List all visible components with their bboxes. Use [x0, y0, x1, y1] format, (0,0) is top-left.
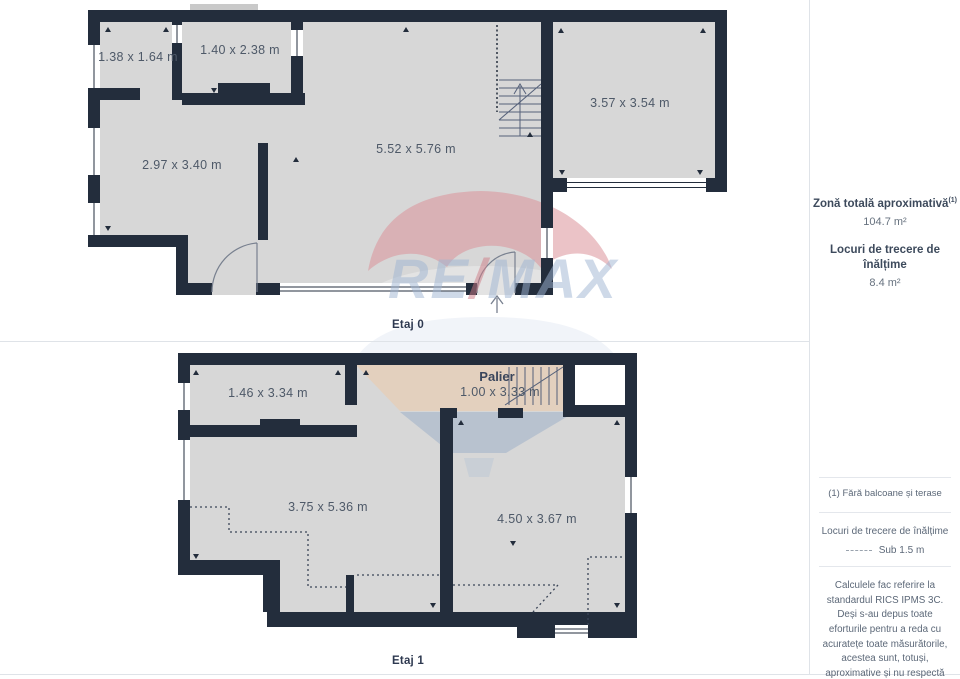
floorplan-page: RE/MAX 1.38 x 1.64 m 1.40 x 2.38 m 2.97 … [0, 0, 960, 679]
watermark-re: RE [388, 247, 470, 310]
disclaimer-block: Calculele fac referire la standardul RIC… [810, 579, 960, 679]
info-sidebar: Zonă totală aproximativă(1) 104.7 m² Loc… [810, 0, 960, 675]
dashed-line-icon [846, 550, 872, 551]
exterior-sill [190, 4, 258, 10]
legend-block: Locuri de trecere de înălțime Sub 1.5 m [810, 526, 960, 556]
disclaimer-text: Calculele fac referire la standardul RIC… [810, 579, 960, 679]
balloon2-basket [464, 458, 494, 477]
remax-watermark-text: RE/MAX [388, 246, 618, 311]
watermark-max: MAX [487, 247, 617, 310]
room-dimension-label: 1.38 x 1.64 m [98, 50, 178, 64]
total-area-block: Zonă totală aproximativă(1) 104.7 m² Loc… [810, 197, 960, 289]
footnote-marker: (1) [948, 197, 957, 204]
passage-area-label: Locuri de trecere de înălțime [810, 243, 960, 272]
legend-value-row: Sub 1.5 m [810, 545, 960, 556]
room-dimension-label: 1.46 x 3.34 m [228, 386, 308, 400]
footnote-text: (1) Fără balcoane și terase [810, 488, 960, 499]
room-dimension-label: 3.57 x 3.54 m [590, 96, 670, 110]
void-notch [575, 365, 625, 405]
room-dimension-label: 1.00 x 3.33 m [460, 385, 540, 399]
total-area-value: 104.7 m² [810, 216, 960, 228]
passage-area-value: 8.4 m² [810, 277, 960, 289]
room-dimension-label: 3.75 x 5.36 m [288, 500, 368, 514]
legend-title: Locuri de trecere de înălțime [810, 526, 960, 537]
legend-value: Sub 1.5 m [879, 545, 925, 556]
floor-name-etaj0: Etaj 0 [392, 319, 424, 331]
floorplan-canvas [0, 0, 810, 675]
watermark-slash: / [470, 247, 488, 310]
floors-section-divider [0, 341, 809, 342]
room-dimension-label: 4.50 x 3.67 m [497, 512, 577, 526]
sidebar-section-divider [819, 477, 951, 478]
palier-label: Palier [479, 369, 514, 384]
total-area-label: Zonă totală aproximativă(1) [810, 197, 960, 211]
room-dimension-label: 2.97 x 3.40 m [142, 158, 222, 172]
footnote-block: (1) Fără balcoane și terase [810, 488, 960, 499]
sidebar-section-divider [819, 566, 951, 567]
sidebar-section-divider [819, 512, 951, 513]
room-dimension-label: 5.52 x 5.76 m [376, 142, 456, 156]
room-dimension-label: 1.40 x 2.38 m [200, 43, 280, 57]
floor-name-etaj1: Etaj 1 [392, 655, 424, 667]
